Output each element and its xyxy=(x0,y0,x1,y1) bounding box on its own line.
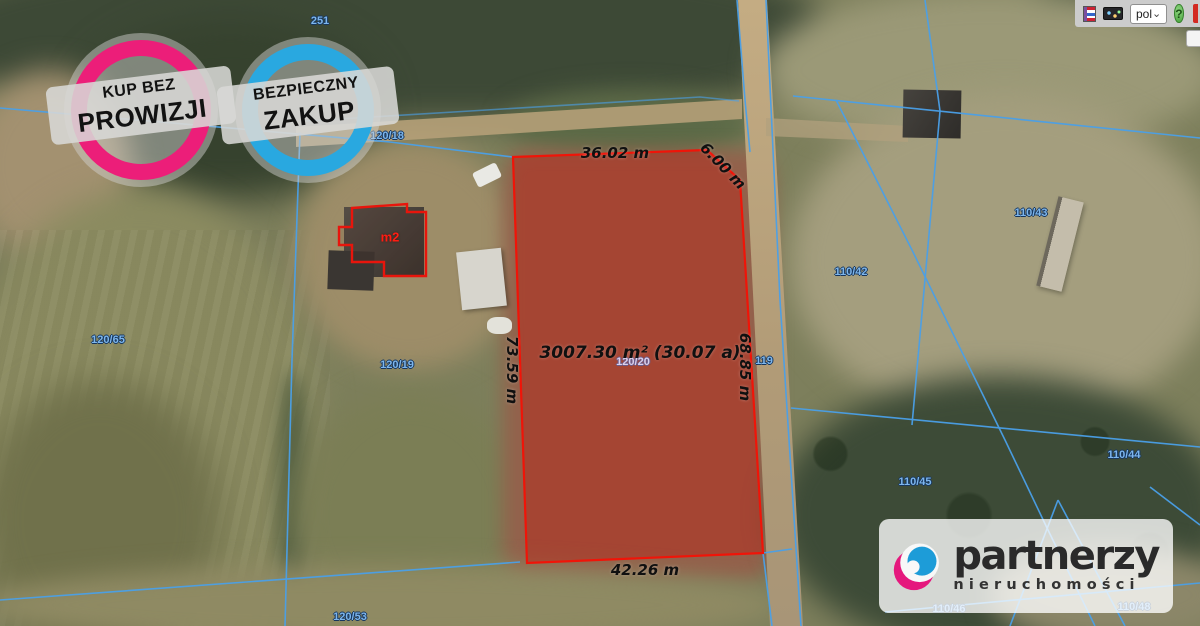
minimap-icon[interactable] xyxy=(1103,7,1123,20)
badge-bezpieczny-zakup: BEZPIECZNY ZAKUP xyxy=(235,37,381,183)
measurement-top: 36.02 m xyxy=(581,144,649,162)
parcel-area-label: 3007.30 m² (30.07 a) xyxy=(539,343,740,363)
map-viewport[interactable]: 36.02 m 6.00 m 73.59 m 68.85 m 42.26 m 3… xyxy=(0,0,1200,626)
map-toolbar: pol ⌄ ? xyxy=(1075,0,1200,27)
language-select[interactable]: pol ⌄ xyxy=(1130,4,1167,24)
badge-kup-bez-prowizji: KUP BEZ PROWIZJI xyxy=(64,33,218,187)
red-panel-button[interactable] xyxy=(1193,4,1198,23)
agency-logo: partnerzy nieruchomości xyxy=(879,519,1173,613)
language-value: pol xyxy=(1136,7,1152,21)
dark-barn-building xyxy=(903,89,962,138)
help-button[interactable]: ? xyxy=(1174,4,1183,23)
map-control-partial[interactable] xyxy=(1186,30,1200,47)
measurement-left: 73.59 m xyxy=(503,336,521,404)
agency-logo-title: partnerzy xyxy=(953,539,1159,573)
measurement-bottom: 42.26 m xyxy=(611,561,679,579)
house-area-label: m2 xyxy=(381,230,400,245)
legend-icon[interactable] xyxy=(1083,6,1096,22)
agency-logo-mark xyxy=(893,535,941,597)
chevron-down-icon: ⌄ xyxy=(1152,10,1161,18)
agency-logo-subtitle: nieruchomości xyxy=(953,577,1159,593)
white-shed-building xyxy=(456,248,507,310)
shed-building xyxy=(327,250,374,291)
small-white-structure xyxy=(487,317,512,334)
